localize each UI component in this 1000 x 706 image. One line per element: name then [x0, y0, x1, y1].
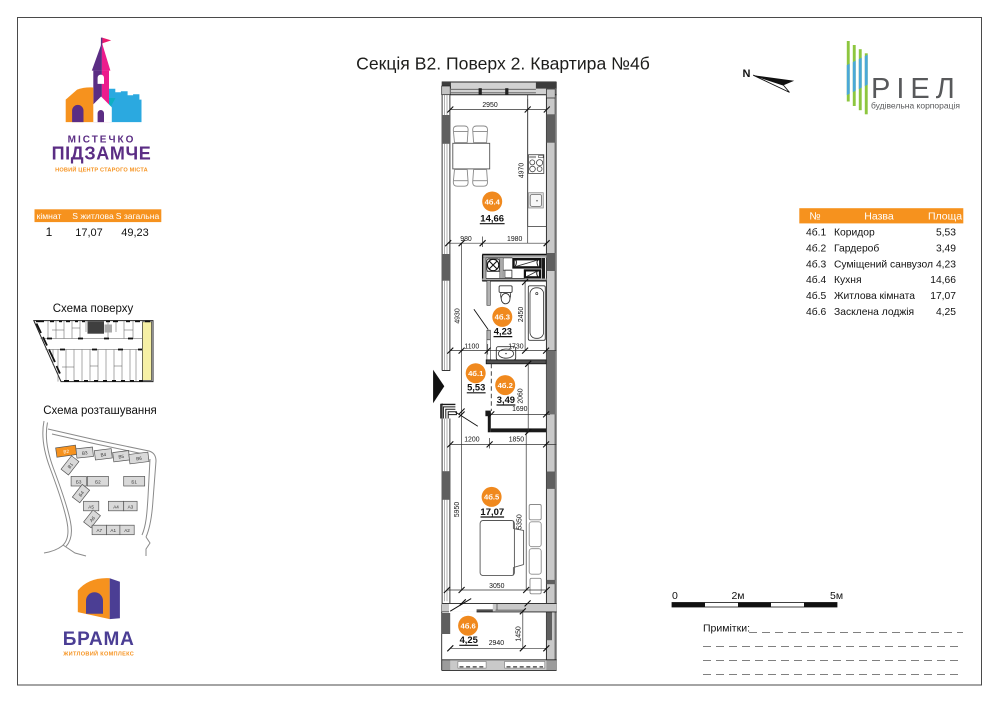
svg-text:14,66: 14,66 [930, 275, 956, 286]
svg-text:2940: 2940 [489, 640, 504, 647]
svg-text:1: 1 [46, 225, 53, 239]
svg-text:5350: 5350 [517, 514, 524, 529]
svg-text:4б.6: 4б.6 [460, 622, 475, 631]
svg-text:14,66: 14,66 [480, 214, 504, 225]
svg-text:S житлова: S житлова [72, 211, 114, 221]
svg-text:4б.4: 4б.4 [806, 274, 826, 286]
svg-text:Схема розташування: Схема розташування [43, 405, 157, 417]
svg-text:А3: А3 [128, 504, 134, 509]
svg-text:3,49: 3,49 [936, 244, 956, 255]
svg-text:4930: 4930 [454, 308, 461, 323]
svg-text:В3: В3 [82, 450, 89, 456]
svg-text:Коридор: Коридор [834, 228, 875, 239]
svg-text:ЖИТЛОВИЙ КОМПЛЕКС: ЖИТЛОВИЙ КОМПЛЕКС [62, 650, 134, 658]
svg-text:БРАМА: БРАМА [63, 629, 135, 650]
svg-text:5,53: 5,53 [936, 228, 956, 239]
svg-text:1980: 1980 [507, 236, 522, 243]
svg-text:4,23: 4,23 [494, 325, 512, 336]
svg-text:4б.2: 4б.2 [498, 381, 513, 390]
svg-text:2м: 2м [731, 590, 744, 602]
svg-text:ПІДЗАМЧЕ: ПІДЗАМЧЕ [52, 144, 152, 164]
svg-text:980: 980 [460, 236, 472, 243]
svg-text:N: N [743, 68, 751, 80]
svg-text:2450: 2450 [518, 307, 525, 322]
svg-text:4б.6: 4б.6 [806, 306, 826, 318]
svg-text:4б.3: 4б.3 [806, 258, 826, 270]
svg-text:3050: 3050 [489, 583, 504, 590]
svg-text:В5: В5 [118, 454, 125, 460]
svg-text:4,25: 4,25 [936, 307, 956, 318]
svg-text:В4: В4 [100, 452, 107, 458]
svg-text:4б.4: 4б.4 [485, 197, 501, 206]
svg-text:Схема поверху: Схема поверху [53, 303, 134, 315]
svg-text:будівельна корпорація: будівельна корпорація [871, 101, 960, 111]
svg-text:17,07: 17,07 [930, 291, 956, 302]
svg-text:Площа: Площа [928, 211, 962, 223]
svg-text:НОВИЙ ЦЕНТР СТАРОГО МІСТА: НОВИЙ ЦЕНТР СТАРОГО МІСТА [55, 166, 148, 174]
svg-text:Б2: Б2 [95, 479, 101, 484]
svg-text:4б.1: 4б.1 [468, 369, 484, 378]
svg-text:4,23: 4,23 [936, 259, 956, 270]
svg-text:4б.2: 4б.2 [806, 243, 826, 255]
svg-text:1850: 1850 [509, 436, 524, 443]
svg-text:17,07: 17,07 [480, 507, 504, 518]
svg-text:Б1: Б1 [131, 479, 137, 484]
svg-text:4б.3: 4б.3 [495, 313, 510, 322]
svg-text:2950: 2950 [482, 102, 497, 109]
svg-text:Житлова кімната: Житлова кімната [834, 291, 915, 302]
svg-text:4б.5: 4б.5 [484, 493, 500, 502]
svg-text:Кухня: Кухня [834, 275, 862, 286]
svg-text:Суміщений санвузол: Суміщений санвузол [834, 259, 933, 270]
svg-text:5,53: 5,53 [467, 382, 485, 393]
svg-text:17,07: 17,07 [75, 227, 103, 239]
svg-text:Секція В2. Поверх 2. Квартира: Секція В2. Поверх 2. Квартира №4б [356, 54, 650, 74]
svg-text:49,23: 49,23 [121, 227, 149, 239]
svg-text:Примітки:: Примітки: [703, 623, 750, 635]
svg-text:А7: А7 [96, 528, 102, 533]
svg-text:А2: А2 [124, 528, 130, 533]
svg-text:А1: А1 [110, 528, 116, 533]
svg-text:4б.5: 4б.5 [806, 290, 826, 302]
svg-text:1730: 1730 [508, 343, 523, 350]
svg-text:В6: В6 [136, 456, 143, 462]
svg-text:кімнат: кімнат [37, 211, 62, 221]
svg-text:Б3: Б3 [76, 479, 82, 484]
svg-text:№: № [809, 211, 820, 223]
svg-text:Назва: Назва [864, 211, 894, 223]
svg-text:1200: 1200 [464, 436, 479, 443]
svg-text:4б.1: 4б.1 [806, 227, 826, 239]
svg-text:1100: 1100 [464, 343, 479, 350]
svg-text:А5: А5 [88, 504, 94, 509]
svg-text:4,25: 4,25 [460, 634, 478, 645]
svg-text:5м: 5м [830, 590, 843, 602]
svg-text:S загальна: S загальна [116, 211, 160, 221]
svg-text:Гардероб: Гардероб [834, 243, 879, 255]
svg-text:А4: А4 [113, 504, 119, 509]
svg-text:1690: 1690 [512, 406, 527, 413]
svg-text:1450: 1450 [516, 626, 523, 641]
svg-text:2060: 2060 [518, 388, 525, 403]
svg-text:4970: 4970 [518, 163, 525, 178]
svg-text:5950: 5950 [454, 502, 461, 517]
svg-text:3,49: 3,49 [497, 394, 515, 405]
svg-text:Засклена лоджія: Засклена лоджія [834, 307, 914, 318]
svg-text:0: 0 [672, 590, 678, 602]
